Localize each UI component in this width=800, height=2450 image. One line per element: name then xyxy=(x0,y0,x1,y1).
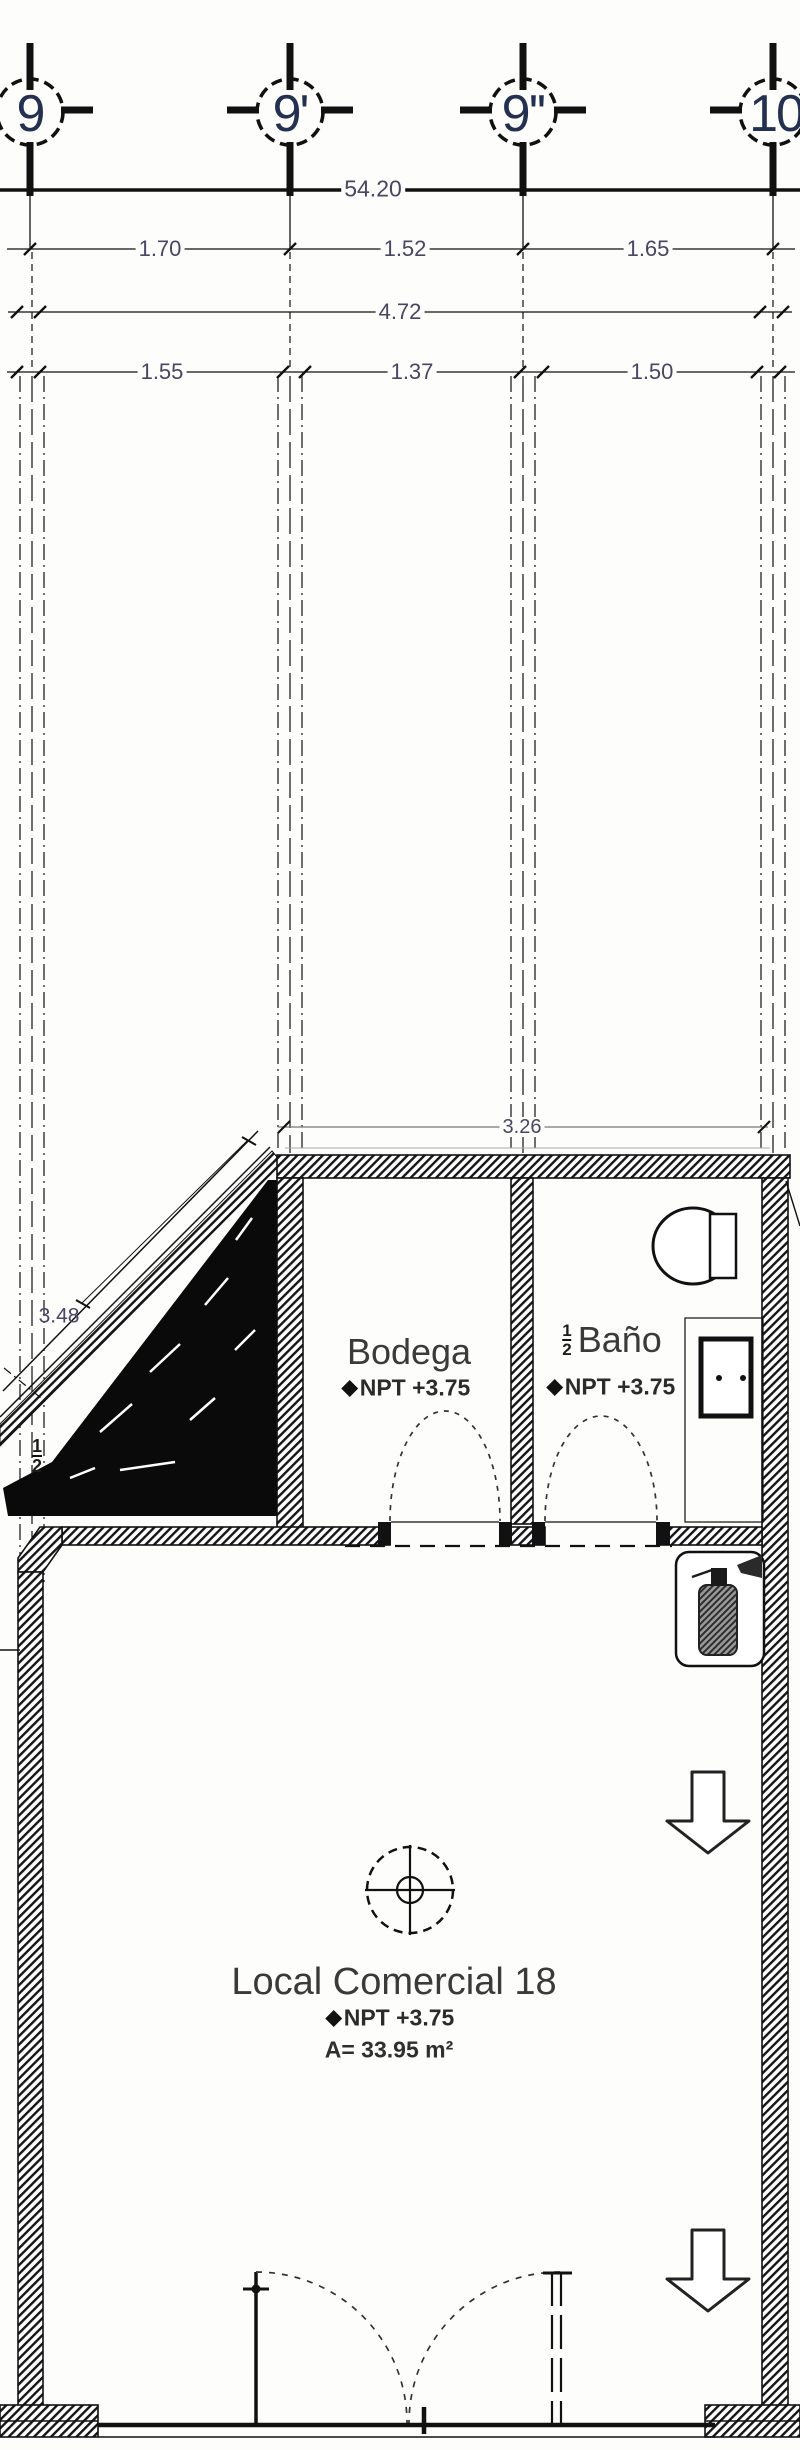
level-benchmark-icon xyxy=(341,1380,358,1397)
banio-level-text: NPT +3.75 xyxy=(565,1376,676,1399)
bodega-level-text: NPT +3.75 xyxy=(360,1377,471,1400)
bodega-room-label: Bodega xyxy=(347,1334,471,1370)
ramp-slope-numerator: 1 xyxy=(32,1437,42,1455)
dimension-label: 1.55 xyxy=(138,361,187,383)
level-benchmark-icon xyxy=(325,2010,342,2027)
banio-door-swing xyxy=(545,1416,657,1521)
grid-bubble-9pp xyxy=(460,43,586,250)
dimension-ramp-length-label: 3.48 xyxy=(36,1306,83,1327)
dimension-bodega-width-label: 3.26 xyxy=(500,1117,545,1137)
grid-bubble-10 xyxy=(710,43,800,250)
dimension-label: 1.52 xyxy=(381,238,430,260)
banio-fraction-denominator: 2 xyxy=(562,1339,571,1358)
banio-door-panel xyxy=(685,1318,763,1522)
dimension-overall-inner: 4.72 xyxy=(376,301,425,323)
dimension-overall-top: 54.20 xyxy=(341,178,405,201)
grid-bubble-label: 9' xyxy=(273,88,308,140)
grid-bubble-9p xyxy=(227,43,353,250)
grid-bubble-label: 10 xyxy=(749,88,800,140)
storefront-sill xyxy=(98,2425,715,2437)
local-room-label: Local Comercial 18 xyxy=(231,1963,556,2001)
toilet-icon xyxy=(653,1208,736,1284)
dimension-label: 1.65 xyxy=(624,238,673,260)
grid-bubble-label: 9 xyxy=(17,88,44,140)
floor-plan-canvas: 9 9' 9'' 10 54.20 1.70 1.52 1.65 4.72 1.… xyxy=(0,0,800,2450)
fire-extinguisher-icon xyxy=(676,1552,764,1666)
centroid-target-icon xyxy=(365,1845,455,1935)
interior-door-openings xyxy=(345,1522,672,1546)
bodega-level-label: NPT +3.75 xyxy=(344,1377,471,1400)
ramp-slope-denominator: 2 xyxy=(32,1455,42,1475)
ramp-slope-fraction: 1 2 xyxy=(32,1437,42,1475)
level-benchmark-icon xyxy=(546,1379,563,1396)
dimension-label: 1.50 xyxy=(628,361,677,383)
banio-level-label: NPT +3.75 xyxy=(549,1376,676,1399)
banio-name-text: Baño xyxy=(578,1322,662,1358)
storefront-double-door xyxy=(243,2272,572,2434)
banio-fraction-numerator: 1 xyxy=(562,1322,571,1339)
exit-arrow-icon xyxy=(667,2230,749,2311)
grid-bubble-label: 9'' xyxy=(502,88,545,140)
dimension-label: 1.37 xyxy=(388,361,437,383)
dimension-label: 1.70 xyxy=(136,238,185,260)
bodega-door-swing xyxy=(390,1411,500,1521)
local-level-label: NPT +3.75 xyxy=(328,2007,455,2030)
local-area-label: A= 33.95 m² xyxy=(325,2039,454,2062)
exit-arrow-icon xyxy=(667,1772,749,1853)
grid-bubble-9 xyxy=(0,43,93,250)
banio-room-label: 1 2 Baño xyxy=(562,1322,662,1358)
local-level-text: NPT +3.75 xyxy=(344,2007,455,2030)
